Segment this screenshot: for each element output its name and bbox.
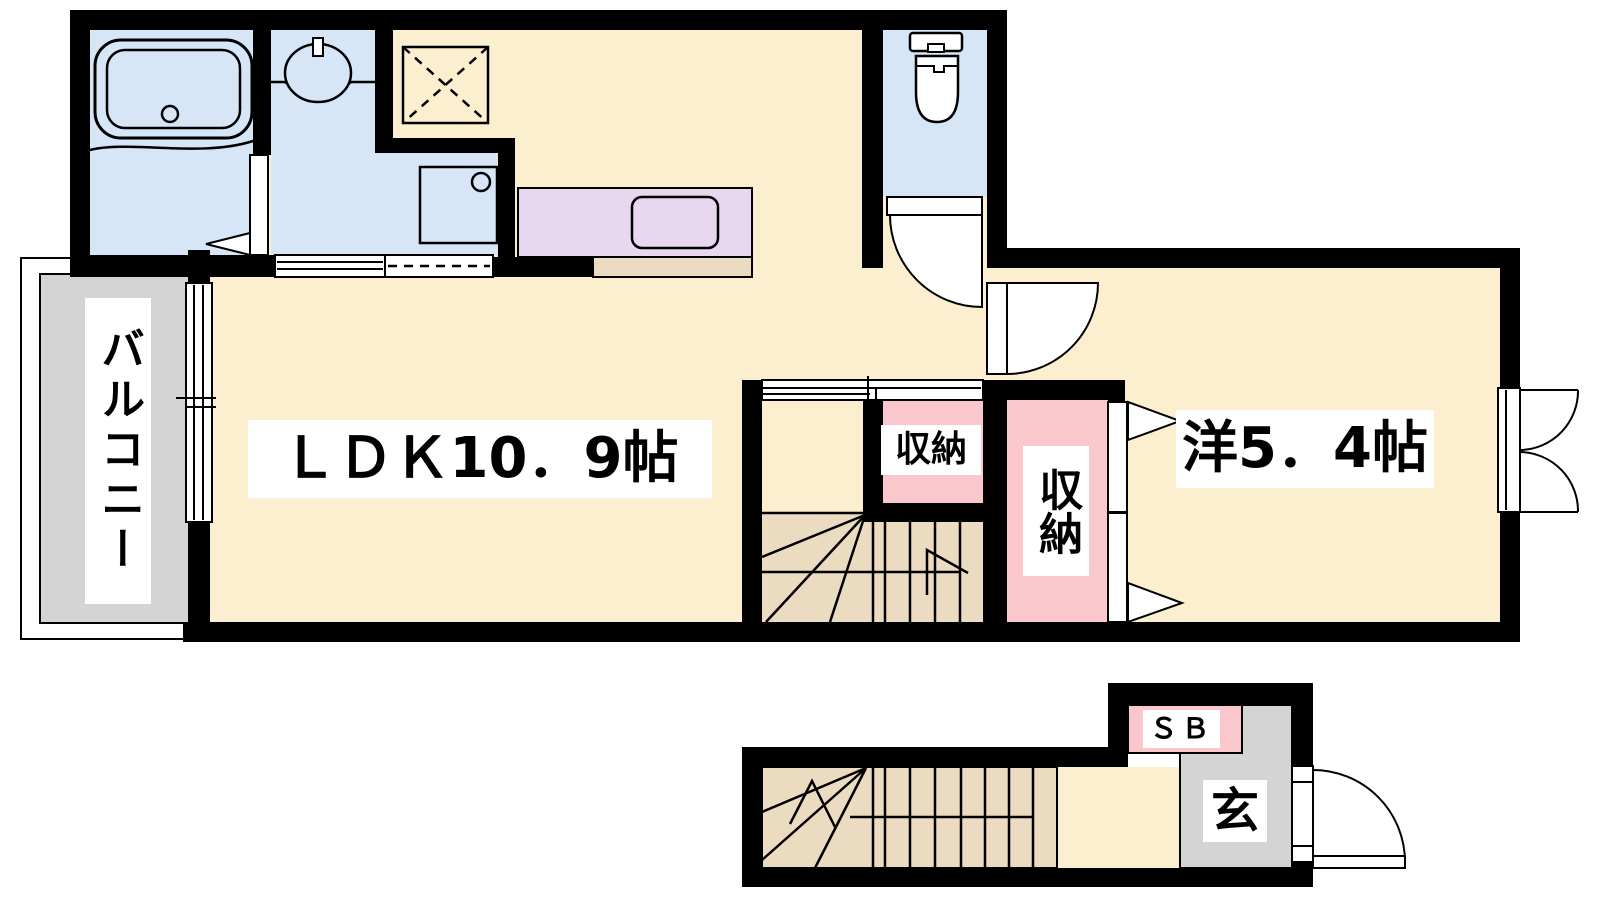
- western-room-label: 洋5．4帖: [1176, 410, 1434, 488]
- washroom-sliding-door: [275, 255, 493, 277]
- closet-large-label: 収納: [1023, 446, 1089, 576]
- toilet: [910, 33, 962, 122]
- casement-window: [1498, 388, 1578, 512]
- closet-small-label: 収納: [881, 425, 981, 475]
- counter-front: [593, 257, 752, 277]
- balcony-label: バルコニー: [85, 298, 151, 604]
- floor-plan: バルコニー ＬＤＫ10．9帖 収納 収納 洋5．4帖 ＳＢ 玄: [0, 0, 1600, 900]
- entrance-door: [1292, 766, 1405, 868]
- shoe-box-label: ＳＢ: [1143, 710, 1220, 748]
- entrance-label: 玄: [1203, 780, 1267, 842]
- stairwell-window: [762, 376, 983, 404]
- ldk-label: ＬＤＫ10．9帖: [248, 420, 712, 498]
